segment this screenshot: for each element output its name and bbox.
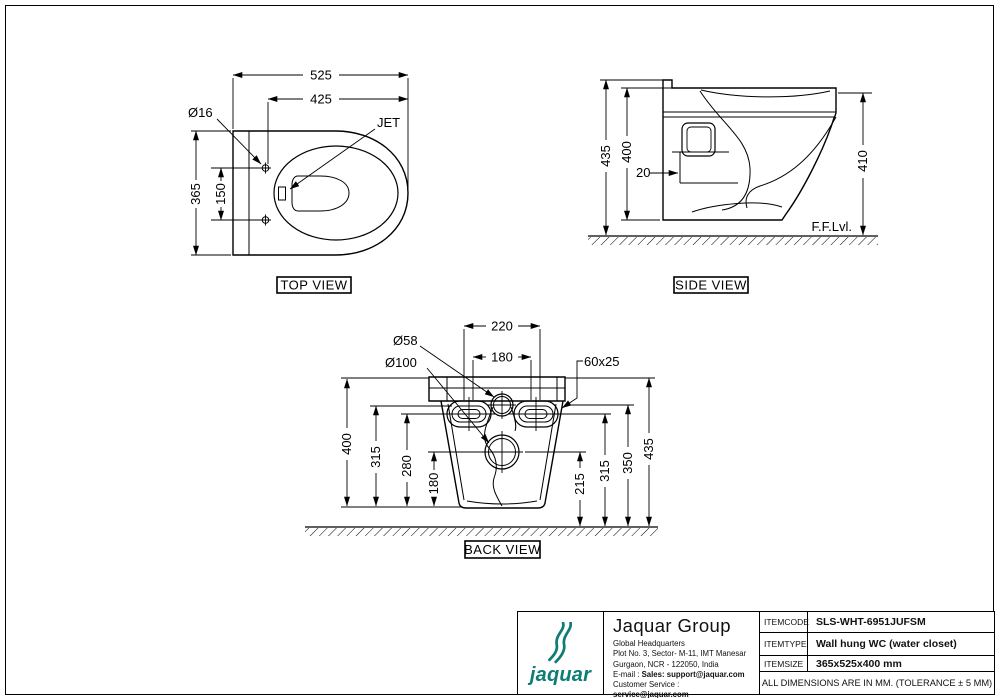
tolerance-note: ALL DIMENSIONS ARE IN MM. (TOLERANCE ± 5… bbox=[760, 672, 994, 694]
item-size-value: 365x525x400 mm bbox=[808, 656, 994, 672]
side-view-title: SIDE VIEW bbox=[675, 278, 747, 293]
side-view: F.F.Lvl. 435 400 20 410 SIDE VIEW bbox=[588, 80, 878, 293]
dim-20: 20 bbox=[636, 165, 650, 180]
dim-220: 220 bbox=[491, 319, 513, 334]
side-view-body bbox=[663, 80, 836, 220]
dim-400-side: 400 bbox=[619, 141, 634, 163]
email-line: E-mail : Sales: support@jaquar.com bbox=[613, 670, 752, 680]
item-type-value: Wall hung WC (water closet) bbox=[808, 633, 994, 656]
dim-280: 280 bbox=[399, 455, 414, 477]
back-view: 220 180 Ø58 Ø100 60x25 400 315 280 bbox=[305, 319, 658, 559]
dim-315-right: 315 bbox=[597, 460, 612, 482]
item-code-label: ITEMCODE bbox=[760, 612, 808, 633]
item-type-label: ITEMTYPE bbox=[760, 633, 808, 656]
floor-level-label: F.F.Lvl. bbox=[812, 219, 852, 234]
dim-435-side: 435 bbox=[598, 145, 613, 167]
item-code-value: SLS-WHT-6951JUFSM bbox=[808, 612, 994, 633]
address-line-2: Plot No. 3, Sector- M-11, IMT Manesar bbox=[613, 649, 752, 659]
top-view-body bbox=[233, 131, 408, 255]
dim-400-back: 400 bbox=[339, 433, 354, 455]
dim-150: 150 bbox=[213, 183, 228, 205]
dim-525: 525 bbox=[310, 68, 332, 83]
dim-180-top: 180 bbox=[491, 350, 513, 365]
drawing-views: 525 425 365 150 Ø16 JET TOP VIEW bbox=[0, 0, 1000, 610]
address-line-1: Global Headquarters bbox=[613, 639, 752, 649]
sales-email: Sales: support@jaquar.com bbox=[642, 670, 745, 679]
dim-365: 365 bbox=[188, 183, 203, 205]
hole-dia-label: Ø16 bbox=[188, 105, 213, 120]
side-view-ground: F.F.Lvl. bbox=[588, 219, 878, 245]
top-view-dimensions: 525 425 365 150 Ø16 JET bbox=[188, 68, 408, 256]
side-view-caption: SIDE VIEW bbox=[674, 277, 748, 293]
company-info: Jaquar Group Global Headquarters Plot No… bbox=[604, 612, 760, 694]
dim-350: 350 bbox=[620, 452, 635, 474]
dim-410: 410 bbox=[855, 150, 870, 172]
dim-315-left: 315 bbox=[368, 446, 383, 468]
inlet-dia-label: Ø58 bbox=[393, 333, 418, 348]
top-view-caption: TOP VIEW bbox=[277, 277, 351, 293]
back-view-ground bbox=[305, 527, 658, 536]
service-email: service@jaquar.com bbox=[613, 690, 689, 698]
back-view-body bbox=[429, 377, 568, 508]
company-name: Jaquar Group bbox=[613, 615, 752, 637]
back-view-caption: BACK VIEW bbox=[464, 541, 541, 558]
address-line-3: Gurgaon, NCR - 122050, India bbox=[613, 660, 752, 670]
item-size-label: ITEMSIZE bbox=[760, 656, 808, 672]
jet-label: JET bbox=[377, 115, 400, 130]
customer-service-line: Customer Service : service@jaquar.com bbox=[613, 680, 752, 698]
title-block: jaquar Jaquar Group Global Headquarters … bbox=[517, 611, 995, 695]
brand-wordmark: jaquar bbox=[530, 665, 591, 685]
jaquar-swoosh-icon bbox=[546, 622, 576, 664]
brand-logo: jaquar bbox=[518, 612, 604, 694]
drawing-sheet: 525 425 365 150 Ø16 JET TOP VIEW bbox=[0, 0, 1000, 698]
back-view-title: BACK VIEW bbox=[464, 542, 541, 557]
top-view: 525 425 365 150 Ø16 JET TOP VIEW bbox=[188, 68, 408, 294]
jet-nozzle bbox=[279, 187, 286, 200]
dim-425: 425 bbox=[310, 92, 332, 107]
dim-180-bottom: 180 bbox=[426, 473, 441, 495]
top-view-title: TOP VIEW bbox=[280, 278, 347, 293]
dim-435-back: 435 bbox=[641, 438, 656, 460]
outlet-dia-label: Ø100 bbox=[385, 355, 417, 370]
dim-215: 215 bbox=[572, 473, 587, 495]
side-view-dimensions: 435 400 20 410 bbox=[598, 80, 872, 235]
slot-size-label: 60x25 bbox=[584, 354, 619, 369]
back-view-dimensions: 220 180 Ø58 Ø100 60x25 400 315 280 bbox=[339, 319, 656, 527]
